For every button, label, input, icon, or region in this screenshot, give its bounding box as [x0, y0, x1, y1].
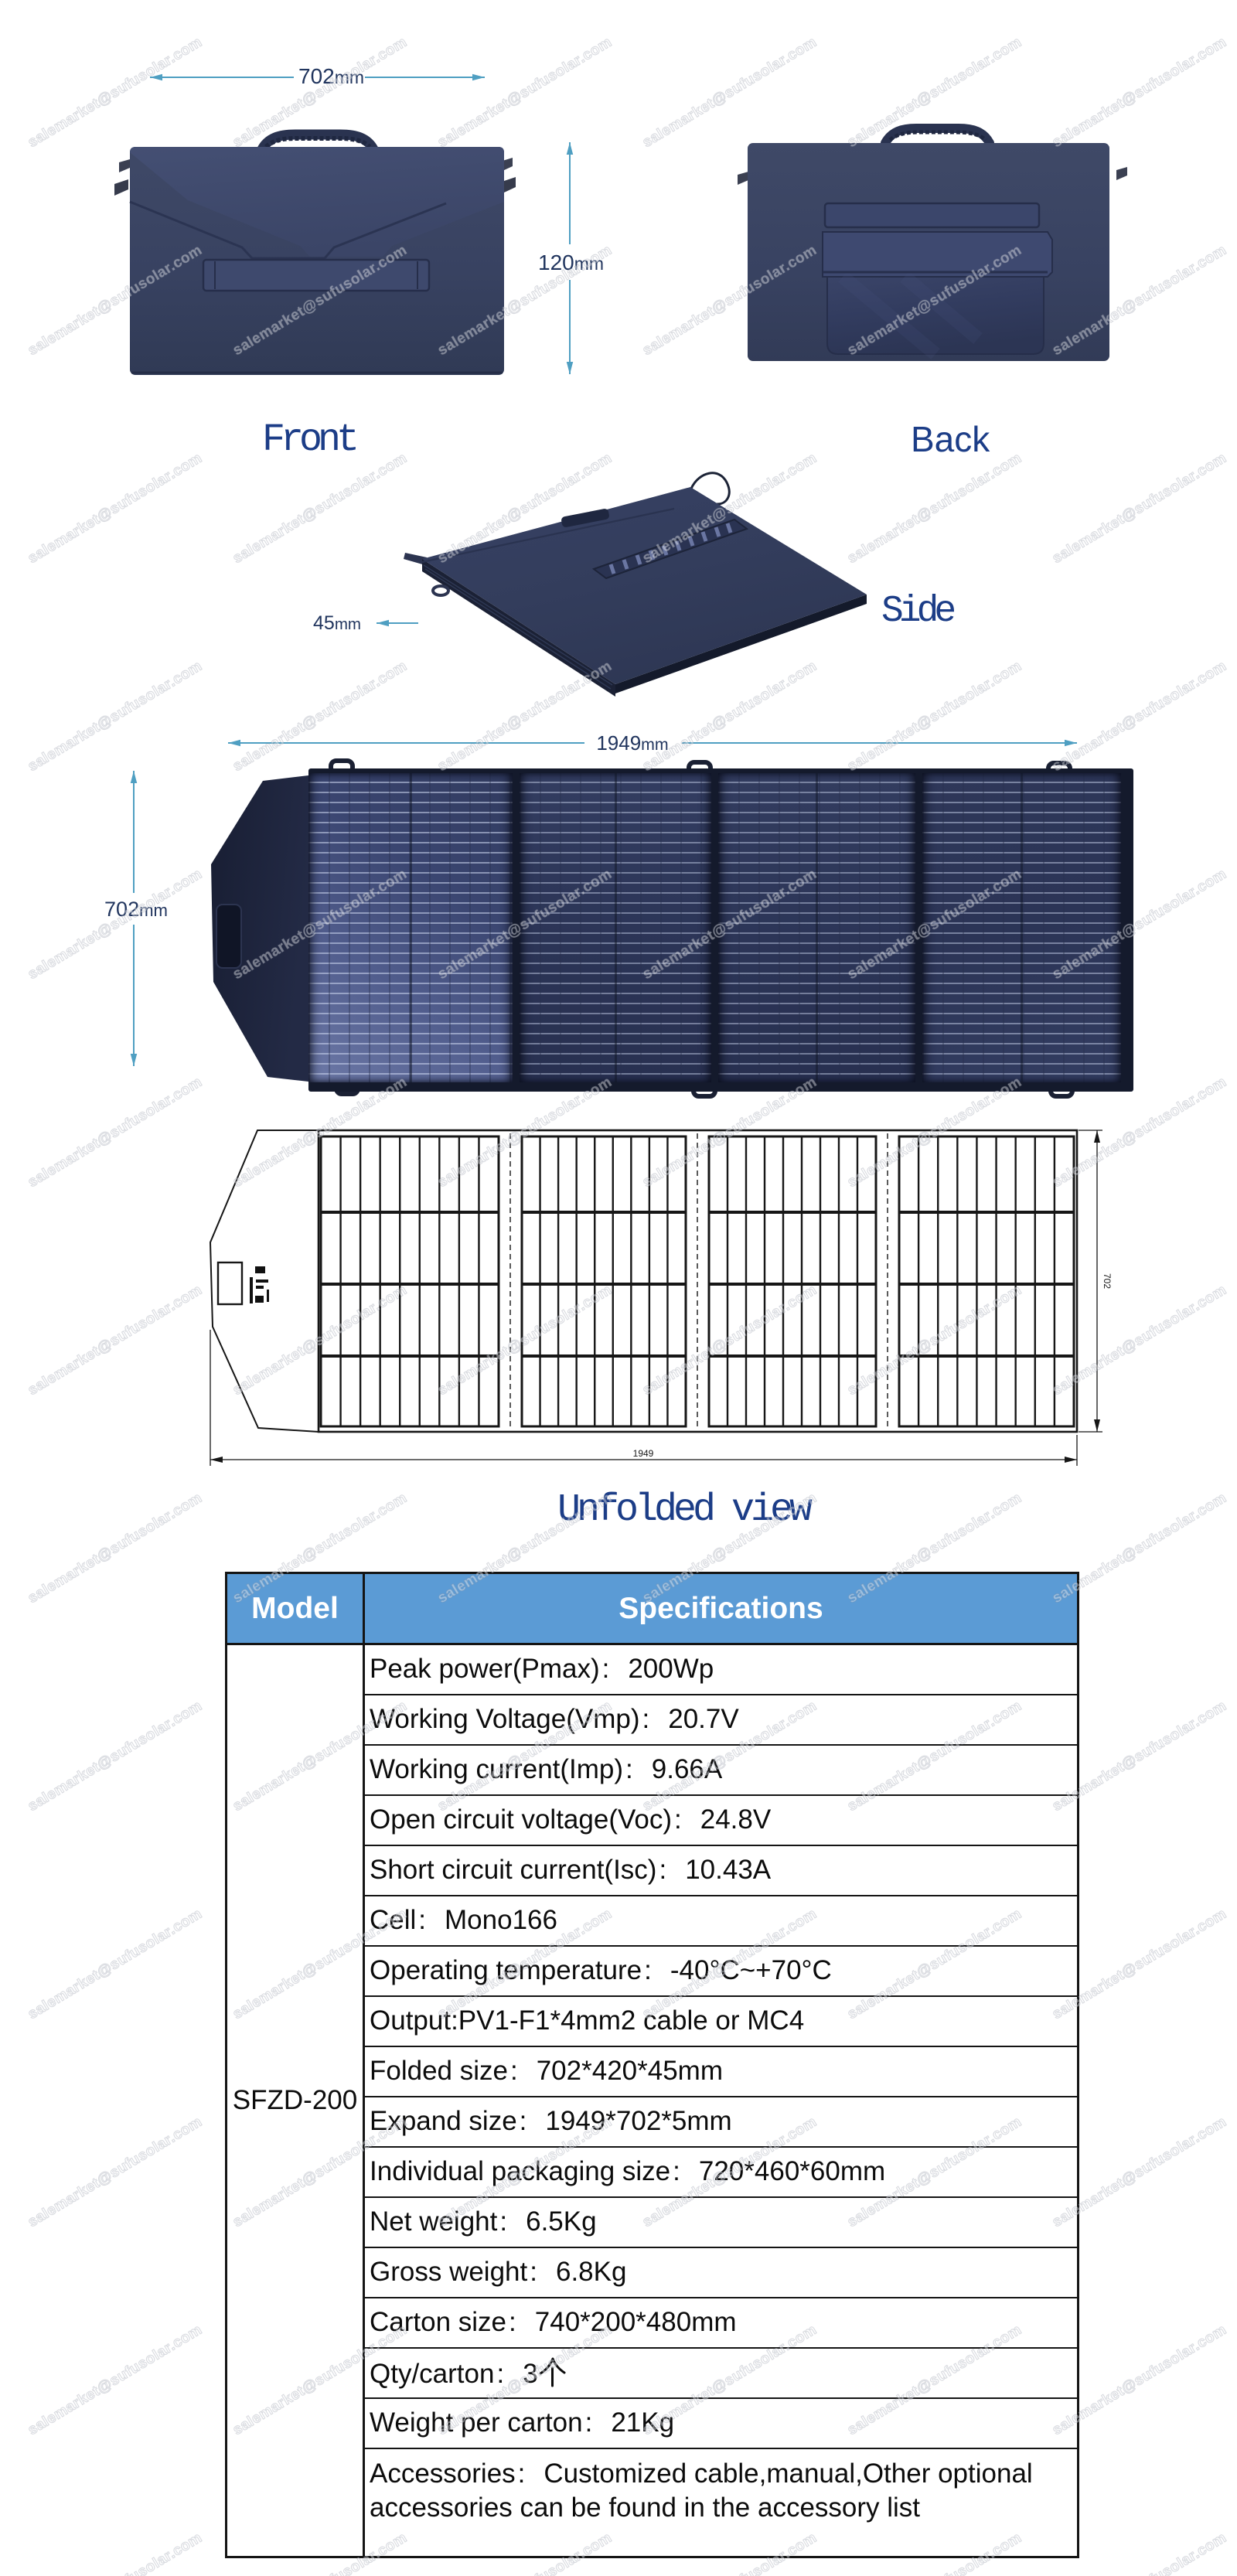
svg-text:702: 702: [1102, 1273, 1113, 1289]
svg-text:1949: 1949: [633, 1448, 654, 1459]
